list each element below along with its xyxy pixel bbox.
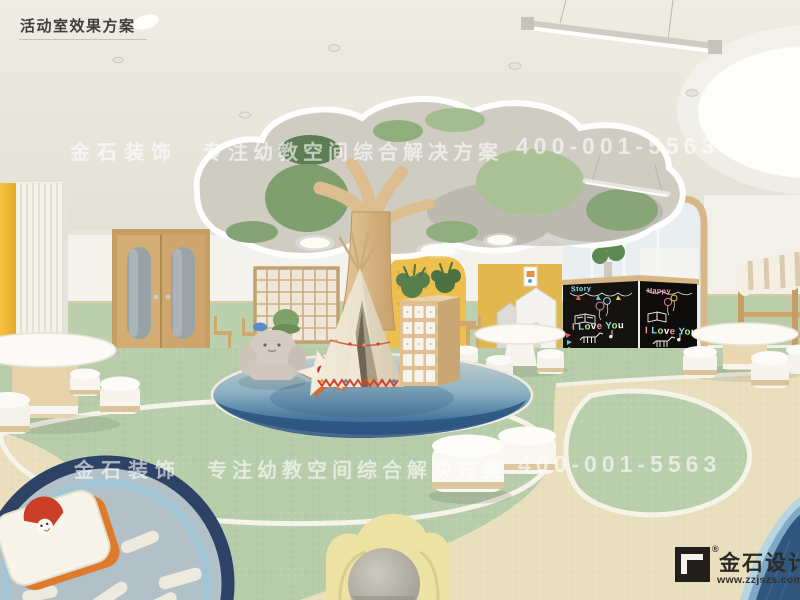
yellow-pillar: [0, 183, 17, 348]
logo-website: www.zzjszs.com: [717, 574, 800, 586]
activity-room-render: 活动室效果方案 金石装饰 专注幼教空间综合解决方案 400-001-5563 金…: [0, 0, 800, 600]
watermark-brand: 金石装饰: [74, 454, 182, 483]
page-title: 活动室效果方案: [20, 15, 136, 36]
left-wall: [0, 182, 68, 354]
watermark-phone: 400-001-5563: [516, 133, 719, 160]
logo-name: 金石设计: [719, 547, 800, 577]
title-underline: [19, 39, 147, 40]
watermark-phone: 400-001-5563: [518, 451, 721, 478]
scene-canvas: [0, 0, 800, 600]
chalkboard-tag-right: Happy: [647, 288, 671, 296]
watermark-slogan: 专注幼教空间综合解决方案: [207, 454, 507, 483]
chalkboard-message-right: I Love You: [645, 325, 698, 338]
double-door: [112, 229, 210, 355]
jinshi-logo-icon: [675, 547, 710, 582]
door-handle: [154, 295, 159, 300]
door-handle: [166, 295, 171, 300]
curtain: [16, 182, 68, 354]
chalkboard-tag-left: Story: [571, 286, 592, 294]
brand-logo: ® 金石设计 www.zzjszs.com: [675, 546, 795, 590]
watermark-slogan: 专注幼教空间综合解决方案: [203, 136, 503, 165]
chalkboard-message-left: I Love You: [572, 320, 625, 333]
registered-trademark-icon: ®: [712, 544, 719, 554]
watermark-brand: 金石装饰: [70, 136, 178, 165]
cubby-shelf: [396, 263, 461, 386]
